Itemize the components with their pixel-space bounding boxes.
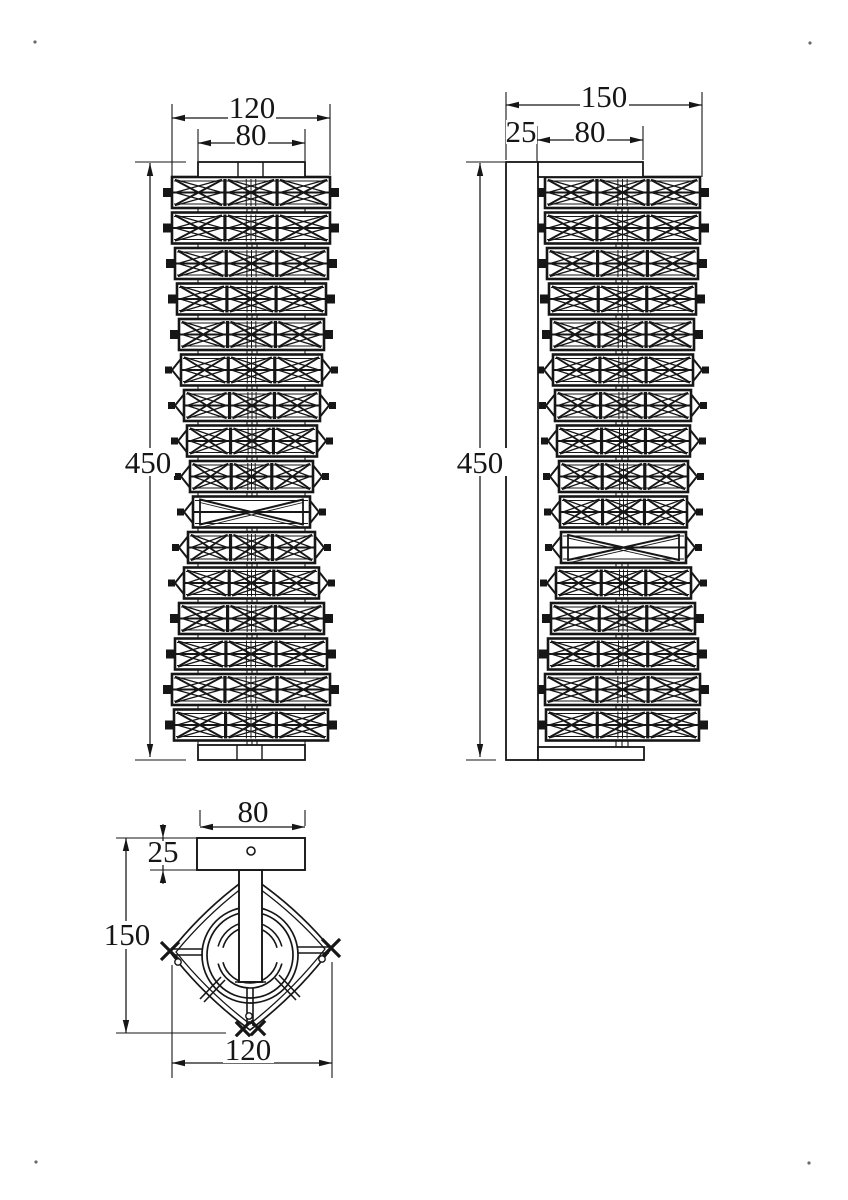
band-pin xyxy=(328,721,337,730)
dimension-arrowhead xyxy=(147,163,153,176)
dimension-arrowhead xyxy=(292,140,305,146)
dimension-arrowhead xyxy=(630,137,643,143)
side-view-crystal-band xyxy=(536,213,709,244)
side-view-crystal-band xyxy=(540,568,707,599)
dimension-arrowhead xyxy=(689,102,702,108)
side-view-crystal-band xyxy=(538,248,707,279)
dimension-80: 80 xyxy=(198,117,305,161)
side-view-crystal-band xyxy=(537,355,709,386)
dimension-arrowhead xyxy=(477,744,483,757)
front-view-crystal-band xyxy=(163,213,339,244)
band-pin xyxy=(542,614,551,623)
dimension-label: 450 xyxy=(457,445,504,480)
band-pin xyxy=(694,330,703,339)
dimension-arrowhead xyxy=(537,137,550,143)
band-pin xyxy=(700,685,709,694)
band-pin xyxy=(700,224,709,233)
scan-dot xyxy=(34,1160,37,1163)
side-view-crystal-band xyxy=(541,426,706,457)
side-view-crystal-band xyxy=(543,461,704,492)
band-pin xyxy=(699,721,708,730)
band-pin xyxy=(163,224,172,233)
band-pin xyxy=(328,259,337,268)
band-pin xyxy=(170,330,179,339)
dimension-arrowhead xyxy=(477,163,483,176)
side-view-crystal-band xyxy=(536,674,709,705)
front-mounting-plate xyxy=(198,162,305,177)
dimension-arrowhead xyxy=(319,1060,332,1066)
dimension-label: 80 xyxy=(236,117,267,152)
scan-dot xyxy=(808,41,811,44)
dimension-arrowhead xyxy=(506,102,519,108)
dimension-80: 80 xyxy=(200,794,305,830)
screw-hole xyxy=(247,847,255,855)
band-pin xyxy=(330,685,339,694)
band-pin xyxy=(324,614,333,623)
dimension-label: 80 xyxy=(238,794,269,829)
band-pin xyxy=(165,721,174,730)
stem xyxy=(239,870,262,982)
clip-ring xyxy=(246,1013,252,1019)
clip-ring xyxy=(175,959,181,965)
dimension-label: 150 xyxy=(104,917,151,952)
dimension-25: 25 xyxy=(116,824,197,884)
side-mounting-bracket xyxy=(538,162,643,177)
dimension-label: 150 xyxy=(581,79,628,114)
band-pin xyxy=(540,295,549,304)
band-pin xyxy=(696,295,705,304)
dimension-25: 25 xyxy=(506,114,538,161)
band-pin xyxy=(163,685,172,694)
dimension-arrowhead xyxy=(198,140,211,146)
side-view-crystal-band xyxy=(539,639,707,670)
dimension-arrowhead xyxy=(147,744,153,757)
dimension-arrowhead xyxy=(172,1060,185,1066)
band-pin xyxy=(163,188,172,197)
side-view-crystal-band xyxy=(542,603,704,634)
band-pin xyxy=(326,295,335,304)
dimension-80: 80 xyxy=(537,114,643,160)
dimension-450: 450 xyxy=(454,162,507,760)
band-pin xyxy=(170,614,179,623)
side-view-crystal-band xyxy=(537,710,708,741)
side-wall-plate xyxy=(506,162,538,760)
front-view-crystal-band xyxy=(177,497,326,528)
front-view-crystal-band xyxy=(165,710,337,741)
dimension-label: 120 xyxy=(225,1032,272,1067)
front-view-crystal-band xyxy=(168,568,335,599)
front-view-crystal-band xyxy=(170,603,333,634)
front-view-crystal-band xyxy=(163,177,339,208)
front-view-crystal-band xyxy=(172,532,331,563)
band-pin xyxy=(700,188,709,197)
side-view-crystal-band xyxy=(536,177,709,208)
scan-dot xyxy=(807,1161,810,1164)
band-pin xyxy=(168,295,177,304)
side-view-crystal-band xyxy=(544,497,703,528)
band-pin xyxy=(698,650,707,659)
front-view-crystal-band xyxy=(170,319,333,350)
scan-dot xyxy=(33,40,36,43)
bottom-view xyxy=(161,838,340,1036)
front-view-crystal-band xyxy=(165,355,338,386)
dimension-arrowhead xyxy=(160,870,166,883)
band-pin xyxy=(539,650,548,659)
front-view-crystal-band xyxy=(171,426,333,457)
side-view-crystal-band xyxy=(540,284,705,315)
crystal-bands xyxy=(163,177,709,741)
front-view-crystal-band xyxy=(166,248,337,279)
dimension-label: 450 xyxy=(125,445,172,480)
dimension-arrowhead xyxy=(123,838,129,851)
front-view-crystal-band xyxy=(166,639,336,670)
band-pin xyxy=(166,259,175,268)
band-pin xyxy=(324,330,333,339)
wall-lamp-dimension-drawing: 1208045015025804508025150120 xyxy=(0,0,848,1200)
front-view-crystal-band xyxy=(168,390,336,421)
band-pin xyxy=(542,330,551,339)
side-view-crystal-band xyxy=(545,532,702,563)
front-view-crystal-band xyxy=(163,674,339,705)
band-pin xyxy=(695,614,704,623)
front-mounting-plate xyxy=(198,745,305,760)
dimension-arrowhead xyxy=(317,115,330,121)
band-pin xyxy=(538,259,547,268)
side-view-crystal-band xyxy=(542,319,703,350)
front-view-crystal-band xyxy=(168,284,335,315)
technical-drawing-canvas: 1208045015025804508025150120 xyxy=(0,0,848,1200)
band-pin xyxy=(330,188,339,197)
dimension-arrowhead xyxy=(172,115,185,121)
side-view-crystal-band xyxy=(539,390,707,421)
band-pin xyxy=(330,224,339,233)
dimension-arrowhead xyxy=(200,824,213,830)
dimension-arrowhead xyxy=(123,1020,129,1033)
dimension-label: 80 xyxy=(575,114,606,149)
side-mounting-bracket xyxy=(538,747,644,760)
front-view-crystal-band xyxy=(174,461,329,492)
band-pin xyxy=(327,650,336,659)
band-pin xyxy=(698,259,707,268)
dimension-label: 25 xyxy=(506,114,537,149)
dimension-label: 25 xyxy=(148,834,179,869)
band-pin xyxy=(166,650,175,659)
clip-ring xyxy=(319,956,325,962)
dimension-arrowhead xyxy=(292,824,305,830)
